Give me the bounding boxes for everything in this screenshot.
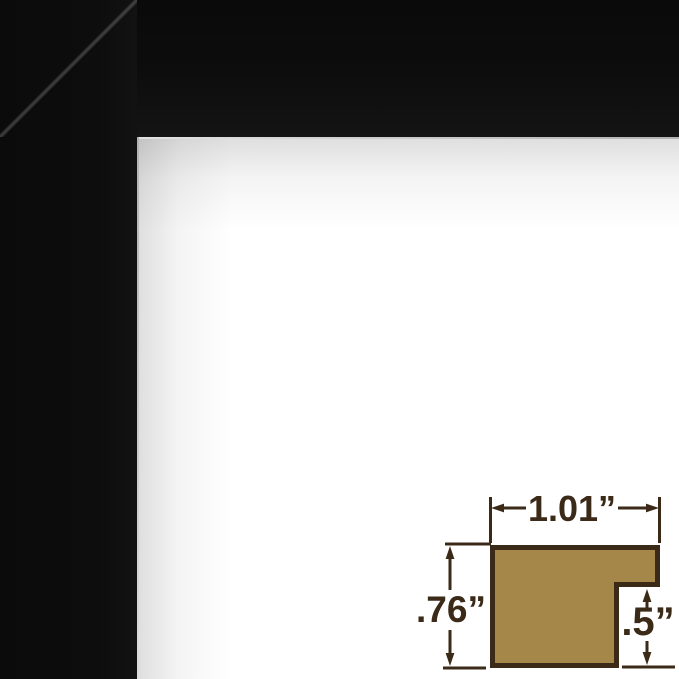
arrowhead-down-icon (643, 652, 652, 665)
width-dimension-label: 1.01” (528, 488, 616, 529)
frame-inner-edge-highlight-horizontal (137, 137, 679, 139)
rabbet-dimension: .5” (621, 589, 675, 667)
moulding-profile-diagram: 1.01” .76” .5” (410, 480, 679, 679)
arrowhead-up-icon (446, 546, 455, 559)
arrowhead-down-icon (446, 653, 455, 666)
height-dimension-label: .76” (416, 589, 486, 630)
arrowhead-right-icon (646, 504, 659, 513)
miter-seam (0, 0, 137, 137)
frame-product-photo: 1.01” .76” .5” (0, 0, 679, 679)
frame-inner-edge-highlight-vertical (137, 137, 139, 679)
height-dimension: .76” (416, 544, 491, 668)
width-dimension: 1.01” (491, 488, 660, 543)
arrowhead-left-icon (491, 504, 504, 513)
rabbet-dimension-label: .5” (621, 600, 674, 644)
